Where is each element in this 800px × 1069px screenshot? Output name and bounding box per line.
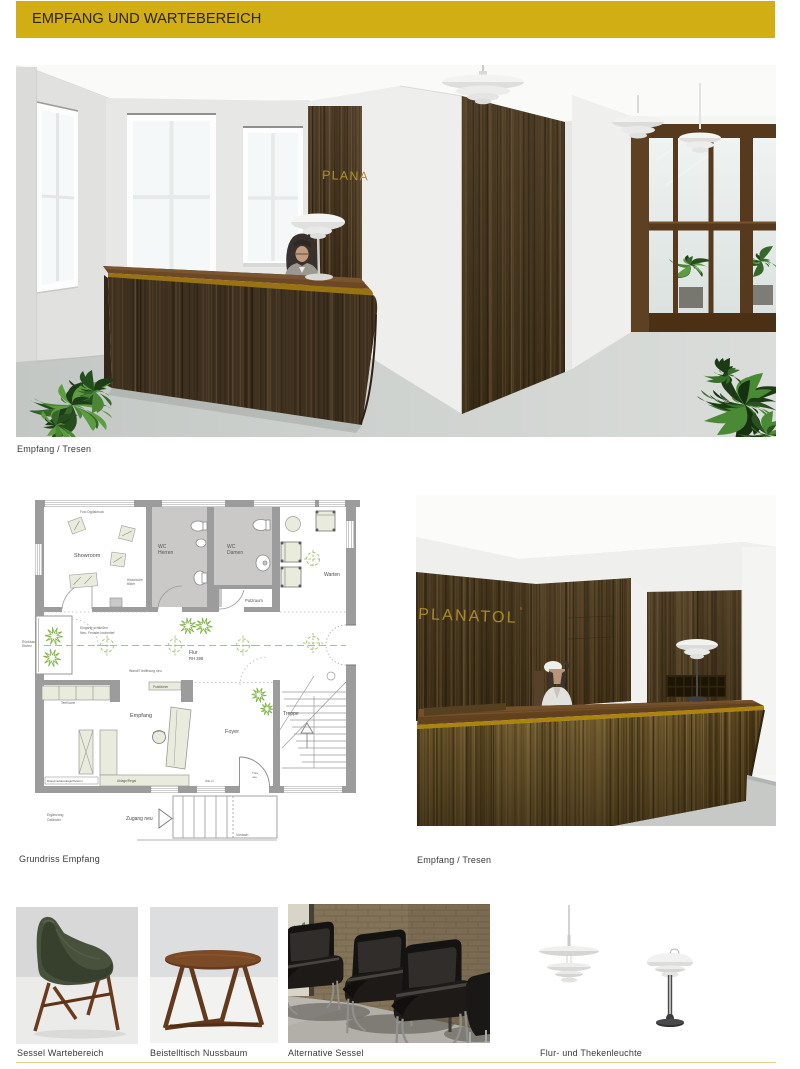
svg-text:Foto Digitaldruck: Foto Digitaldruck: [80, 510, 104, 514]
svg-text:Neu: Fenster bodentief: Neu: Fenster bodentief: [80, 631, 115, 635]
svg-text:Eingang schließen: Eingang schließen: [80, 626, 108, 630]
svg-text:RH 298: RH 298: [189, 656, 204, 661]
svg-text:Brandmeldeanlage/Telefon: Brandmeldeanlage/Telefon: [47, 779, 83, 783]
svg-text:°: °: [519, 606, 523, 615]
svg-text:Warten: Warten: [324, 572, 340, 578]
svg-text:TeeKüche: TeeKüche: [61, 701, 75, 705]
svg-text:Geländer: Geländer: [47, 818, 62, 822]
svg-text:Foyer: Foyer: [225, 729, 239, 735]
svg-text:Bilder: Bilder: [127, 582, 136, 586]
svg-text:Ablage/Regal: Ablage/Regal: [117, 779, 136, 783]
svg-text:Stufen: Stufen: [22, 644, 32, 648]
svg-text:Damen: Damen: [227, 550, 243, 556]
svg-text:Vordach: Vordach: [236, 833, 249, 837]
svg-text:Herren: Herren: [158, 550, 174, 556]
svg-text:Putzraum: Putzraum: [245, 598, 263, 603]
svg-text:Wfe In: Wfe In: [205, 779, 214, 783]
svg-text:PLANA: PLANA: [322, 168, 369, 184]
svg-text:Showroom: Showroom: [74, 553, 101, 559]
svg-text:Ergänzung: Ergänzung: [47, 813, 64, 817]
svg-text:Postfächer: Postfächer: [153, 685, 169, 689]
svg-text:neu: neu: [252, 775, 257, 779]
svg-text:Empfang: Empfang: [130, 713, 152, 719]
svg-text:Treppe: Treppe: [283, 711, 299, 717]
svg-text:Zugang neu: Zugang neu: [126, 816, 153, 822]
svg-text:Wand/Türöffnung neu: Wand/Türöffnung neu: [129, 669, 162, 673]
